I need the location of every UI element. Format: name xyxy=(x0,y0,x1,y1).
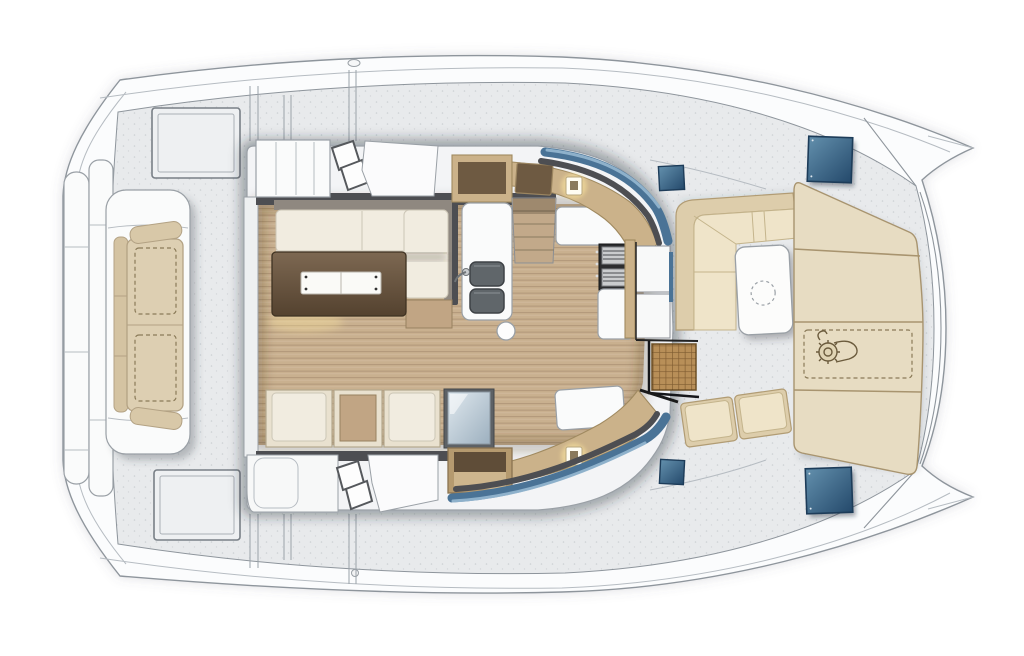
cockpit-bench-stbd-cushion-1 xyxy=(685,400,734,442)
tv-cabinet-recess xyxy=(458,162,506,194)
saloon xyxy=(244,140,699,512)
deck-hatch-starboard-small xyxy=(659,459,684,484)
companionway-step-shade xyxy=(513,198,555,214)
seat-cushion-1 xyxy=(272,393,326,441)
deck-locker-hatch-starboard xyxy=(154,470,240,540)
table-leaf-pin xyxy=(375,276,378,279)
aft-cabinet-recess-dark xyxy=(454,452,506,472)
saloon-aft-door-column xyxy=(244,197,258,457)
swim-platform xyxy=(64,160,196,496)
port-companionway xyxy=(256,140,438,197)
door-panel-upper xyxy=(636,246,670,292)
stove-knob xyxy=(596,263,599,266)
galley-stool xyxy=(497,322,515,340)
table-leaf-pin xyxy=(305,276,308,279)
door-header-line xyxy=(636,340,698,341)
deck-hatch-port-bow xyxy=(807,136,853,183)
deck-plan-drawing xyxy=(0,0,1024,656)
teak-grate-grid xyxy=(652,344,696,390)
door-glass-sliver xyxy=(669,252,673,302)
catamaran-deck-plan xyxy=(0,0,1024,656)
seat-cushion-3 xyxy=(389,393,435,441)
table-leaf-pin xyxy=(305,288,308,291)
starboard-side-bench xyxy=(247,455,338,512)
cockpit-bench-stbd-cushion-2 xyxy=(739,392,788,434)
deck-fitting-port xyxy=(348,60,360,67)
deck-hatch-starboard-bow xyxy=(805,467,853,514)
door-panel-lower xyxy=(636,294,670,338)
port-side-bench xyxy=(256,140,330,197)
courtesy-light-port-lens xyxy=(570,181,578,190)
forward-cockpit-table xyxy=(735,245,794,336)
dash-recess-port xyxy=(515,163,553,195)
sofa-side-table xyxy=(406,300,452,328)
forward-cockpit xyxy=(676,183,923,475)
door-trim-beige xyxy=(625,240,635,338)
port-step-landing xyxy=(362,141,438,196)
deck-fitting-starboard xyxy=(352,570,359,577)
aft-bench xyxy=(114,220,183,430)
aft-bench-back-bolsters xyxy=(114,237,128,412)
platform-step-outer xyxy=(64,172,89,484)
deck-locker-hatch-port xyxy=(152,108,240,178)
deck-hatch-port-small xyxy=(658,165,684,190)
seat-cushion-2-tan xyxy=(340,395,376,441)
aft-seat-row xyxy=(266,389,494,448)
stove-knob xyxy=(596,275,599,278)
stove-knob xyxy=(596,251,599,254)
table-leaf-pin xyxy=(375,288,378,291)
